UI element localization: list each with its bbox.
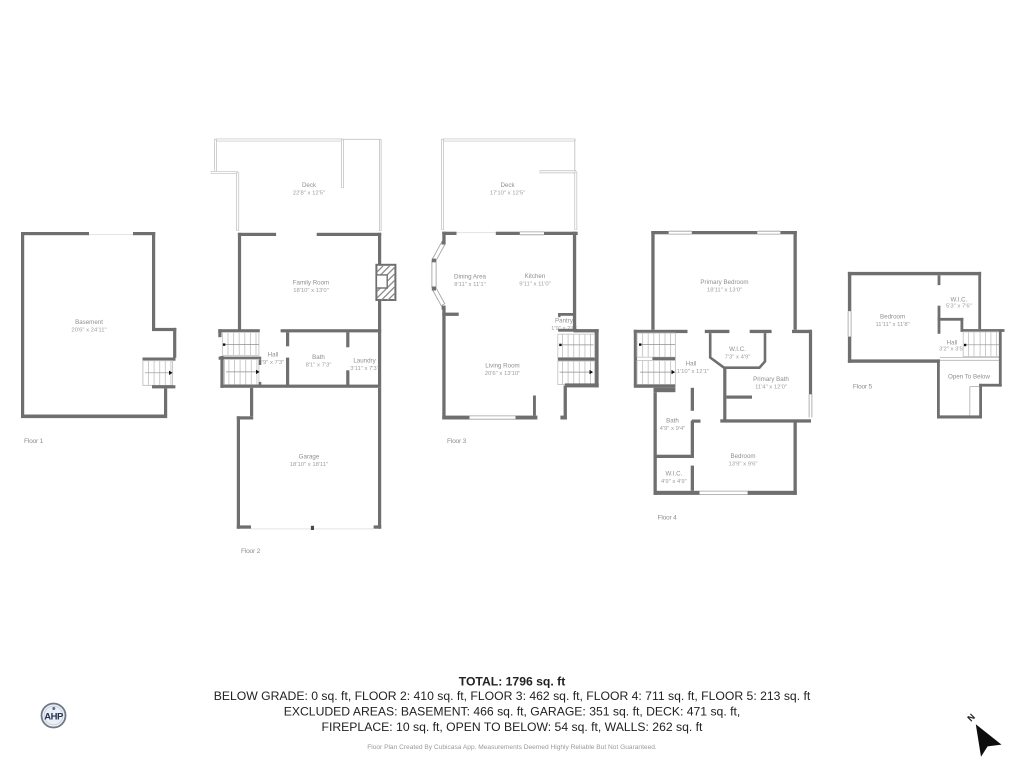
svg-text:4'9" x 9'4": 4'9" x 9'4" xyxy=(660,426,686,432)
svg-text:Bath: Bath xyxy=(312,354,325,361)
svg-text:11'4" x 12'0": 11'4" x 12'0" xyxy=(755,385,787,391)
svg-text:Floor 3: Floor 3 xyxy=(447,438,467,445)
svg-text:9'11" x 11'0": 9'11" x 11'0" xyxy=(519,282,550,288)
svg-text:3'11" x 7'3": 3'11" x 7'3" xyxy=(350,366,379,372)
svg-text:Family Room: Family Room xyxy=(293,280,329,287)
svg-text:BELOW GRADE: 0 sq. ft, FLOOR 2: BELOW GRADE: 0 sq. ft, FLOOR 2: 410 sq. … xyxy=(214,689,811,703)
svg-text:Basement: Basement xyxy=(75,319,103,326)
svg-text:Floor 5: Floor 5 xyxy=(853,384,873,391)
svg-text:5'3" x 7'6": 5'3" x 7'6" xyxy=(946,304,972,310)
svg-text:Deck: Deck xyxy=(500,182,515,189)
svg-text:Hall: Hall xyxy=(686,361,697,368)
svg-text:Bedroom: Bedroom xyxy=(880,314,905,321)
svg-text:Primary Bath: Primary Bath xyxy=(753,376,789,383)
svg-text:Floor 1: Floor 1 xyxy=(24,438,44,445)
svg-text:Pantry: Pantry xyxy=(555,318,574,325)
svg-text:13'9" x 9'6": 13'9" x 9'6" xyxy=(728,462,757,468)
svg-text:Open To Below: Open To Below xyxy=(948,374,990,381)
svg-text:4'9" x 4'9": 4'9" x 4'9" xyxy=(661,479,687,485)
svg-text:8'1" x 7'3": 8'1" x 7'3" xyxy=(306,363,332,369)
svg-text:18'10" x 13'0": 18'10" x 13'0" xyxy=(293,288,329,294)
svg-text:Hall: Hall xyxy=(268,352,279,359)
svg-text:17'10" x 12'5": 17'10" x 12'5" xyxy=(490,191,526,197)
svg-text:18'11" x 13'0": 18'11" x 13'0" xyxy=(707,288,742,294)
svg-text:11'10" x 12'1": 11'10" x 12'1" xyxy=(674,369,709,375)
svg-text:Bath: Bath xyxy=(666,418,679,425)
svg-text:Garage: Garage xyxy=(299,454,320,461)
svg-text:FIREPLACE: 10 sq. ft, OPEN TO: FIREPLACE: 10 sq. ft, OPEN TO BELOW: 54 … xyxy=(322,720,704,734)
svg-text:Deck: Deck xyxy=(302,182,317,189)
svg-text:AHP: AHP xyxy=(44,712,64,723)
svg-text:TOTAL: 1796 sq. ft: TOTAL: 1796 sq. ft xyxy=(459,675,566,689)
svg-text:11'11" x 11'8": 11'11" x 11'8" xyxy=(875,322,909,328)
svg-text:7'3" x 4'9": 7'3" x 4'9" xyxy=(725,355,751,361)
svg-text:Bedroom: Bedroom xyxy=(730,453,755,460)
svg-text:Laundry: Laundry xyxy=(353,358,376,365)
svg-text:18'10" x 18'11": 18'10" x 18'11" xyxy=(290,462,328,468)
svg-text:Living Room: Living Room xyxy=(485,363,519,370)
svg-text:W.I.C.: W.I.C. xyxy=(665,471,682,478)
svg-text:W.I.C.: W.I.C. xyxy=(729,346,746,353)
svg-text:20'6" x 13'10": 20'6" x 13'10" xyxy=(485,371,521,377)
svg-text:Floor 4: Floor 4 xyxy=(658,515,678,522)
svg-text:W.I.C.: W.I.C. xyxy=(950,297,967,304)
svg-text:20'6" x 24'11": 20'6" x 24'11" xyxy=(71,328,106,334)
svg-text:Primary Bedroom: Primary Bedroom xyxy=(700,279,748,286)
svg-text:Floor Plan Created By Cubicasa: Floor Plan Created By Cubicasa App. Meas… xyxy=(367,744,657,751)
svg-text:3'2" x 3'5": 3'2" x 3'5" xyxy=(939,347,965,353)
svg-text:EXCLUDED AREAS: BASEMENT: 466: EXCLUDED AREAS: BASEMENT: 466 sq. ft, GA… xyxy=(284,705,741,719)
svg-text:Hall: Hall xyxy=(947,340,958,347)
svg-text:22'8" x 12'5": 22'8" x 12'5" xyxy=(293,191,325,197)
svg-text:Kitchen: Kitchen xyxy=(525,273,546,280)
svg-text:8'11" x 11'1": 8'11" x 11'1" xyxy=(454,282,485,288)
svg-text:Dining Area: Dining Area xyxy=(454,274,487,281)
svg-text:Floor 2: Floor 2 xyxy=(241,548,261,555)
